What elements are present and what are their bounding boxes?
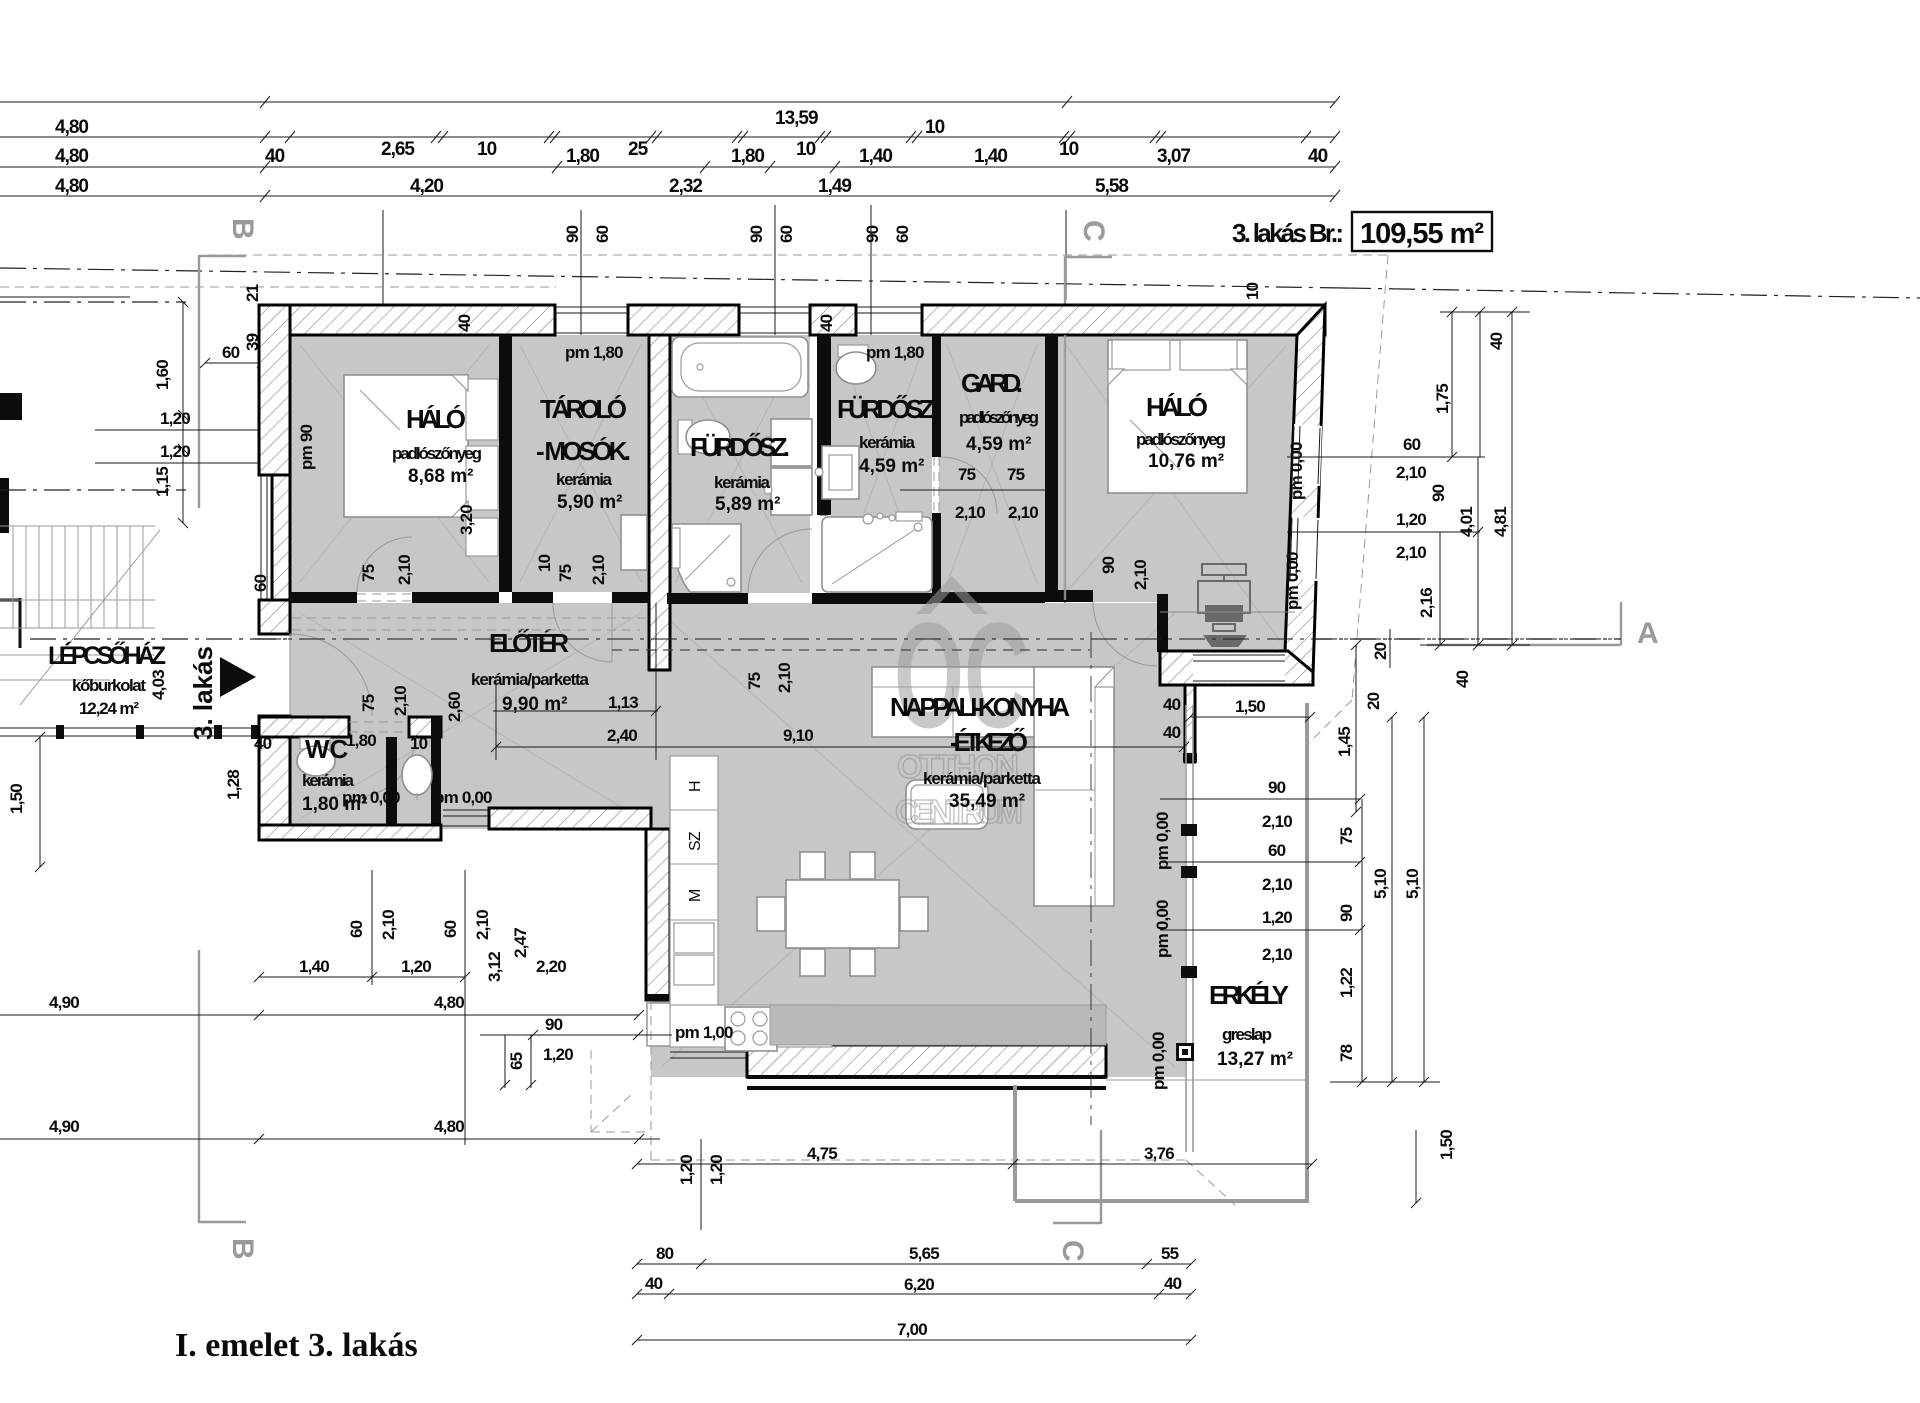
svg-text:90: 90: [863, 225, 882, 243]
svg-text:2,16: 2,16: [1417, 588, 1436, 618]
svg-text:3. lakás Br.:: 3. lakás Br.:: [1232, 218, 1344, 248]
svg-text:4,80: 4,80: [55, 176, 88, 197]
svg-text:10: 10: [925, 117, 945, 138]
svg-text:80: 80: [656, 1244, 674, 1263]
svg-text:4,01: 4,01: [1457, 507, 1476, 537]
svg-text:3,76: 3,76: [1144, 1144, 1174, 1163]
svg-text:90: 90: [747, 225, 766, 243]
svg-text:1,20: 1,20: [707, 1155, 726, 1185]
svg-text:5,90 m²: 5,90 m²: [557, 492, 622, 513]
svg-text:greslap: greslap: [1222, 1025, 1272, 1044]
svg-text:78: 78: [1337, 1044, 1356, 1062]
svg-text:10: 10: [1059, 139, 1079, 160]
svg-text:60: 60: [347, 920, 366, 938]
svg-text:padlószőnyeg: padlószőnyeg: [959, 408, 1039, 427]
svg-text:FÜRDŐSZ.: FÜRDŐSZ.: [690, 432, 790, 462]
svg-text:13,27 m²: 13,27 m²: [1217, 1049, 1293, 1070]
svg-text:9,10: 9,10: [783, 726, 813, 745]
svg-text:pm 1,80: pm 1,80: [866, 343, 924, 362]
svg-text:3,07: 3,07: [1157, 146, 1190, 167]
svg-text:20: 20: [1364, 692, 1383, 710]
svg-text:kőburkolat: kőburkolat: [72, 676, 146, 695]
svg-text:40: 40: [1453, 670, 1472, 688]
svg-text:5,58: 5,58: [1095, 176, 1128, 197]
svg-text:40: 40: [1164, 1274, 1182, 1293]
svg-text:4,90: 4,90: [49, 1117, 79, 1136]
svg-text:75: 75: [1007, 465, 1025, 484]
svg-text:I. emelet 3. lakás: I. emelet 3. lakás: [175, 1327, 418, 1364]
svg-text:2,10: 2,10: [1262, 875, 1292, 894]
svg-text:HÁLÓ: HÁLÓ: [1146, 392, 1208, 422]
svg-text:75: 75: [359, 564, 378, 582]
svg-text:3,20: 3,20: [457, 505, 476, 535]
svg-text:pm 0,00: pm 0,00: [1153, 812, 1172, 870]
svg-text:2,10: 2,10: [1131, 560, 1150, 590]
svg-text:2,10: 2,10: [391, 686, 410, 716]
svg-text:10: 10: [796, 139, 816, 160]
svg-text:60: 60: [893, 225, 912, 243]
svg-text:- ÉTKEZŐ: - ÉTKEZŐ: [950, 727, 1028, 757]
svg-text:WC: WC: [305, 734, 349, 764]
svg-text:35,49 m²: 35,49 m²: [949, 791, 1025, 812]
svg-text:pm 0,00: pm 0,00: [342, 788, 400, 807]
svg-text:2,60: 2,60: [445, 692, 464, 722]
svg-text:SZ: SZ: [687, 831, 704, 851]
svg-text:B: B: [226, 1238, 259, 1260]
svg-text:M: M: [687, 889, 704, 902]
svg-text:2,47: 2,47: [511, 928, 530, 958]
svg-text:21: 21: [243, 284, 262, 302]
svg-text:40: 40: [254, 734, 272, 753]
svg-text:10: 10: [1243, 282, 1262, 300]
svg-text:109,55 m²: 109,55 m²: [1360, 218, 1484, 250]
svg-text:12,24 m²: 12,24 m²: [79, 699, 139, 718]
svg-text:25: 25: [628, 139, 649, 160]
svg-text:2,10: 2,10: [1008, 503, 1038, 522]
svg-text:1,20: 1,20: [160, 409, 190, 428]
svg-text:1,20: 1,20: [1262, 908, 1292, 927]
svg-text:40: 40: [455, 314, 474, 332]
svg-text:5,10: 5,10: [1403, 869, 1422, 899]
svg-text:60: 60: [441, 920, 460, 938]
svg-text:4,03: 4,03: [149, 670, 168, 700]
svg-text:13,59: 13,59: [775, 108, 818, 129]
svg-text:4,59 m²: 4,59 m²: [966, 434, 1031, 455]
svg-text:1,50: 1,50: [7, 784, 26, 814]
svg-text:60: 60: [593, 225, 612, 243]
svg-text:pm 0,00: pm 0,00: [1153, 900, 1172, 958]
svg-text:4,80: 4,80: [434, 993, 464, 1012]
svg-text:2,10: 2,10: [1396, 543, 1426, 562]
svg-text:4,80: 4,80: [55, 117, 88, 138]
svg-text:H: H: [687, 781, 704, 792]
svg-text:pm 0,00: pm 0,00: [1287, 442, 1306, 500]
svg-text:1,28: 1,28: [224, 770, 243, 800]
svg-text:pm 0,00: pm 0,00: [1283, 552, 1302, 610]
svg-text:1,20: 1,20: [543, 1045, 573, 1064]
svg-text:65: 65: [507, 1052, 526, 1070]
svg-text:75: 75: [556, 564, 575, 582]
svg-text:kerámia/parketta: kerámia/parketta: [471, 670, 590, 689]
svg-text:60: 60: [1403, 435, 1421, 454]
svg-text:3,12: 3,12: [485, 952, 504, 982]
svg-text:40: 40: [645, 1274, 663, 1293]
svg-text:1,40: 1,40: [299, 957, 329, 976]
svg-text:40: 40: [817, 314, 836, 332]
svg-text:40: 40: [1487, 332, 1506, 350]
svg-text:2,32: 2,32: [669, 176, 702, 197]
svg-text:75: 75: [745, 672, 764, 690]
svg-text:2,10: 2,10: [589, 555, 608, 585]
svg-text:HÁLÓ: HÁLÓ: [406, 404, 466, 434]
svg-text:10: 10: [535, 554, 554, 572]
svg-text:2,10: 2,10: [955, 503, 985, 522]
svg-text:ERKÉLY: ERKÉLY: [1209, 980, 1289, 1010]
svg-text:90: 90: [545, 1015, 563, 1034]
svg-text:40: 40: [1163, 695, 1181, 714]
svg-text:padlószőnyeg: padlószőnyeg: [392, 444, 482, 463]
svg-text:1,60: 1,60: [153, 360, 172, 390]
svg-text:1,20: 1,20: [160, 442, 190, 461]
svg-text:90: 90: [1099, 556, 1118, 574]
svg-text:5,89 m²: 5,89 m²: [715, 494, 780, 515]
svg-text:60: 60: [777, 225, 796, 243]
svg-text:C: C: [1077, 220, 1110, 242]
svg-text:90: 90: [1337, 904, 1356, 922]
svg-text:4,75: 4,75: [807, 1144, 837, 1163]
svg-text:75: 75: [1337, 827, 1356, 845]
svg-text:- MOSÓK.: - MOSÓK.: [536, 436, 631, 466]
svg-text:pm 0,00: pm 0,00: [434, 788, 492, 807]
svg-text:60: 60: [1268, 841, 1286, 860]
svg-text:1,75: 1,75: [1433, 384, 1452, 414]
svg-text:2,65: 2,65: [381, 139, 415, 160]
svg-text:1,22: 1,22: [1337, 968, 1356, 998]
svg-text:10: 10: [477, 139, 497, 160]
svg-text:kerámia: kerámia: [556, 470, 613, 489]
svg-text:2,10: 2,10: [473, 910, 492, 940]
svg-text:kerámia: kerámia: [714, 473, 771, 492]
svg-text:4,20: 4,20: [410, 176, 443, 197]
svg-text:2,10: 2,10: [1262, 812, 1292, 831]
svg-text:10,76 m²: 10,76 m²: [1148, 451, 1224, 472]
svg-text:4,90: 4,90: [49, 993, 79, 1012]
svg-text:40: 40: [1163, 723, 1181, 742]
svg-text:LÉPCSŐHÁZ: LÉPCSŐHÁZ: [48, 641, 166, 670]
svg-text:75: 75: [958, 465, 976, 484]
svg-text:3. lakás: 3. lakás: [188, 646, 218, 740]
svg-text:5,65: 5,65: [909, 1244, 939, 1263]
svg-text:4,59 m²: 4,59 m²: [859, 456, 924, 477]
svg-text:NAPPALI-KONYHA: NAPPALI-KONYHA: [890, 692, 1070, 722]
svg-text:1,15: 1,15: [153, 467, 172, 497]
svg-text:5,10: 5,10: [1371, 869, 1390, 899]
svg-text:10: 10: [410, 734, 428, 753]
svg-text:A: A: [1637, 617, 1659, 650]
svg-text:kerámia/parketta: kerámia/parketta: [923, 769, 1042, 788]
svg-text:ELŐTÉR: ELŐTÉR: [489, 628, 569, 658]
svg-text:9,90 m²: 9,90 m²: [502, 694, 567, 715]
svg-text:6,20: 6,20: [904, 1275, 934, 1294]
svg-text:kerámia: kerámia: [859, 433, 916, 452]
svg-text:pm 1,80: pm 1,80: [565, 343, 623, 362]
svg-text:FÜRDŐSZ.: FÜRDŐSZ.: [837, 394, 937, 424]
svg-text:1,40: 1,40: [974, 146, 1007, 167]
svg-text:1,50: 1,50: [1235, 697, 1265, 716]
svg-text:8,68 m²: 8,68 m²: [408, 466, 473, 487]
svg-text:2,10: 2,10: [395, 555, 414, 585]
svg-text:40: 40: [1308, 146, 1328, 167]
svg-text:4,81: 4,81: [1491, 507, 1510, 537]
svg-text:40: 40: [265, 146, 285, 167]
svg-text:1,80: 1,80: [566, 146, 599, 167]
svg-text:2,10: 2,10: [775, 663, 794, 693]
svg-text:90: 90: [563, 225, 582, 243]
svg-text:1,45: 1,45: [1335, 727, 1354, 757]
svg-text:TÁROLÓ: TÁROLÓ: [540, 394, 627, 424]
svg-text:C: C: [1056, 1240, 1089, 1262]
svg-text:90: 90: [1429, 484, 1448, 502]
svg-text:1,20: 1,20: [677, 1155, 696, 1185]
svg-text:1,50: 1,50: [1437, 1130, 1456, 1160]
svg-text:2,40: 2,40: [607, 726, 637, 745]
svg-text:1,13: 1,13: [608, 693, 638, 712]
svg-text:B: B: [226, 218, 259, 240]
svg-text:75: 75: [359, 694, 378, 712]
svg-text:20: 20: [1371, 642, 1390, 660]
svg-text:4,80: 4,80: [434, 1117, 464, 1136]
svg-text:2,10: 2,10: [1396, 463, 1426, 482]
svg-text:1,80: 1,80: [731, 146, 764, 167]
svg-text:1,80: 1,80: [346, 731, 376, 750]
svg-text:7,00: 7,00: [897, 1320, 927, 1339]
svg-text:4,80: 4,80: [55, 146, 88, 167]
svg-text:pm 90: pm 90: [297, 425, 316, 470]
svg-text:2,10: 2,10: [1262, 945, 1292, 964]
svg-text:1,20: 1,20: [401, 957, 431, 976]
svg-text:pm 1,00: pm 1,00: [675, 1023, 733, 1042]
svg-text:1,20: 1,20: [1396, 510, 1426, 529]
svg-text:2,20: 2,20: [536, 957, 566, 976]
svg-text:55: 55: [1161, 1244, 1179, 1263]
svg-text:1,49: 1,49: [818, 176, 851, 197]
svg-text:1,40: 1,40: [859, 146, 892, 167]
svg-text:padlószőnyeg: padlószőnyeg: [1136, 430, 1226, 449]
svg-text:90: 90: [1268, 778, 1286, 797]
svg-text:60: 60: [222, 343, 240, 362]
svg-text:GARD.: GARD.: [961, 368, 1023, 398]
svg-text:2,10: 2,10: [379, 910, 398, 940]
svg-text:pm 0,00: pm 0,00: [1149, 1032, 1168, 1090]
